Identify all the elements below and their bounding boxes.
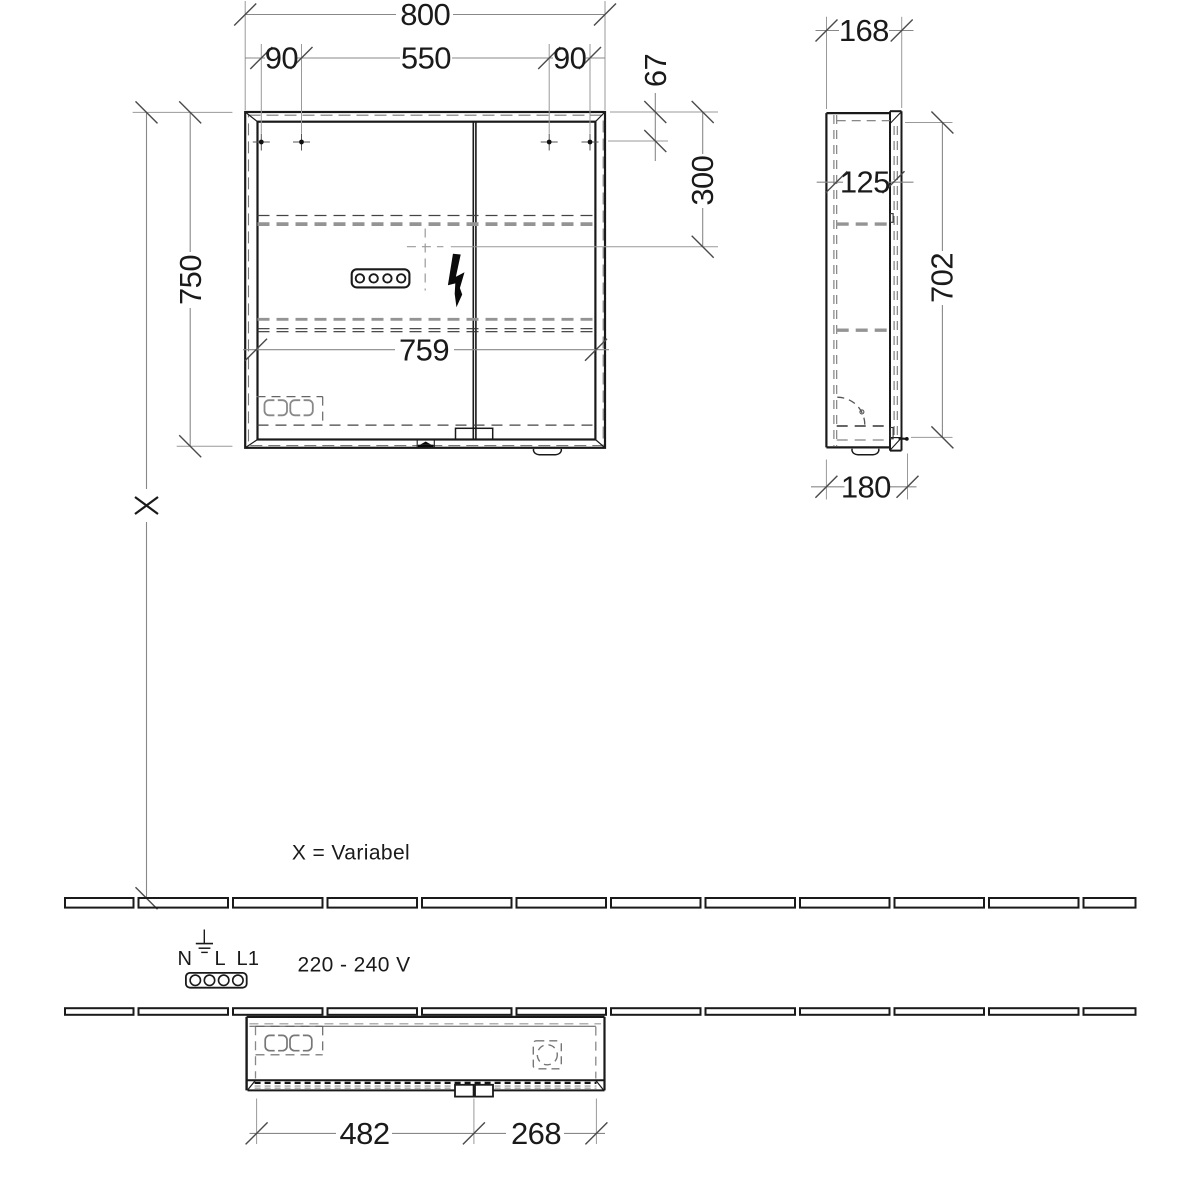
svg-text:L1: L1 [237,948,260,970]
svg-text:550: 550 [401,41,451,76]
svg-text:168: 168 [839,13,889,48]
svg-text:180: 180 [841,469,891,504]
svg-text:90: 90 [553,41,587,76]
svg-text:268: 268 [511,1116,561,1151]
svg-text:X = Variabel: X = Variabel [292,842,410,865]
svg-text:800: 800 [400,0,450,32]
svg-text:759: 759 [399,332,449,367]
svg-text:N: N [178,948,193,970]
svg-text:L: L [215,948,226,970]
svg-text:300: 300 [685,155,720,205]
svg-text:125: 125 [840,165,890,200]
svg-text:750: 750 [173,255,208,305]
svg-text:220 - 240 V: 220 - 240 V [298,954,411,977]
svg-text:67: 67 [638,54,673,87]
svg-text:482: 482 [340,1116,390,1151]
svg-text:702: 702 [925,253,960,303]
svg-text:90: 90 [265,41,299,76]
